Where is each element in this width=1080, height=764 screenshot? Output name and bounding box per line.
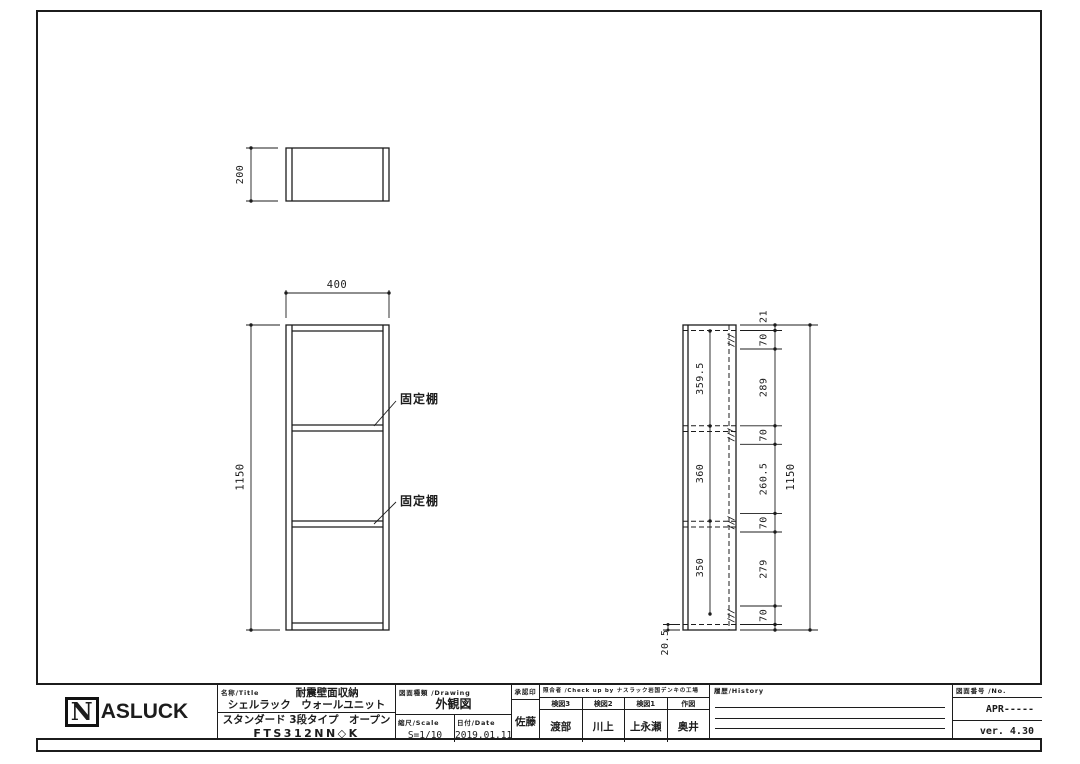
- side-chain-dim-70b: 70: [759, 429, 770, 442]
- side-overall-dim-text: 1150: [785, 463, 797, 490]
- history-rule: [715, 738, 945, 739]
- front-height-dim-text: 1150: [235, 463, 247, 490]
- drawing-type-value: 外観図: [396, 696, 511, 714]
- top-view-depth-dimension: [246, 146, 278, 202]
- side-chain-dim-21: 21: [759, 310, 770, 323]
- front-width-dimension: [284, 290, 390, 318]
- side-chain-dim-70d: 70: [759, 609, 770, 622]
- approval-name: 佐藤: [512, 700, 539, 742]
- approval-label: 承認印: [512, 685, 539, 700]
- scale-value: S=1/10: [396, 730, 454, 741]
- side-chain-dim-289: 289: [759, 378, 770, 398]
- side-inner-dim-2: 360: [695, 464, 706, 484]
- side-right-dimension-chain: [740, 323, 818, 631]
- drawing-area: 200 400 1150 固定棚 固定棚 359.5 360 350 21 70…: [0, 0, 1080, 764]
- product-series: シェルラック ウォールユニット: [218, 699, 395, 713]
- front-view-outline: [286, 325, 389, 630]
- check-cell: 照合者 /Check up by ナスラック岩国デンキの工場 検図3 渡部 検図…: [540, 685, 710, 738]
- check-name: 奥井: [668, 710, 710, 742]
- check-name: 渡部: [540, 710, 582, 742]
- history-cell: 履歴/History: [710, 685, 953, 738]
- title-field-label: 名称/Title: [218, 687, 259, 697]
- drawing-no-label: 図面番号 /No.: [953, 685, 1042, 698]
- side-overall-dimension: [808, 323, 811, 631]
- logo-text: ASLUCK: [101, 700, 189, 724]
- check-role: 検図2: [583, 698, 625, 710]
- history-rule: [715, 707, 945, 708]
- side-view-outline: [683, 325, 736, 630]
- side-bottom-dim-text: 20.5: [660, 629, 671, 655]
- scale-cell: 縮尺/Scale S=1/10: [396, 715, 455, 742]
- top-depth-dim-text: 200: [235, 165, 246, 185]
- date-label: 日付/Date: [455, 715, 511, 727]
- history-rule: [715, 728, 945, 729]
- side-view-hidden-lines: [683, 325, 736, 630]
- drawing-no-value: APR-----: [953, 698, 1042, 721]
- scale-label: 縮尺/Scale: [396, 715, 454, 727]
- shelf-label-1: 固定棚: [400, 391, 439, 406]
- side-inner-dim-1: 359.5: [695, 362, 706, 395]
- number-cell: 図面番号 /No. APR----- ver. 4.30: [953, 685, 1042, 738]
- shelf-leader-lines: [374, 401, 396, 524]
- model-number: FTS312NN◇K: [218, 727, 395, 742]
- approval-cell: 承認印 佐藤: [512, 685, 540, 738]
- history-rule: [715, 718, 945, 719]
- side-chain-dim-279: 279: [759, 559, 770, 579]
- top-view-outline: [286, 148, 389, 201]
- title-cell: 名称/Title 耐震壁面収納 シェルラック ウォールユニット スタンダード 3…: [218, 685, 396, 738]
- front-width-dim-text: 400: [327, 279, 347, 291]
- front-height-dimension: [246, 323, 280, 631]
- logo-initial: N: [65, 697, 99, 727]
- date-cell: 日付/Date 2019.01.11: [455, 715, 511, 742]
- shelf-label-2: 固定棚: [400, 493, 439, 508]
- title-block: N ASLUCK 名称/Title 耐震壁面収納 シェルラック ウォールユニット…: [36, 683, 1042, 740]
- check-column-3: 検図3 渡部: [540, 698, 583, 742]
- side-inner-dim-3: 350: [695, 558, 706, 578]
- check-role: 検図1: [625, 698, 667, 710]
- side-inner-dimension-chain: [708, 329, 711, 615]
- check-column-1: 検図1 上永瀬: [625, 698, 668, 742]
- product-title: 耐震壁面収納: [259, 685, 395, 700]
- check-column-2: 検図2 川上: [583, 698, 626, 742]
- side-chain-dim-70c: 70: [759, 516, 770, 529]
- check-name: 上永瀬: [625, 710, 667, 742]
- check-label: 照合者 /Check up by ナスラック岩国デンキの工場: [540, 685, 709, 698]
- logo-cell: N ASLUCK: [36, 685, 218, 738]
- front-view-shelves: [292, 425, 383, 527]
- check-name: 川上: [583, 710, 625, 742]
- drawing-type-cell: 図面種類 /Drawing 外観図 縮尺/Scale S=1/10 日付/Dat…: [396, 685, 512, 738]
- version-text: ver. 4.30: [953, 721, 1042, 742]
- drawing-sheet: 200 400 1150 固定棚 固定棚 359.5 360 350 21 70…: [0, 0, 1080, 764]
- nasluck-logo: N ASLUCK: [65, 697, 188, 727]
- product-type: スタンダード 3段タイプ オープン: [218, 713, 395, 727]
- drafting-column: 作図 奥井: [668, 698, 710, 742]
- history-label: 履歴/History: [710, 685, 952, 698]
- check-role: 検図3: [540, 698, 582, 710]
- check-role: 作図: [668, 698, 710, 710]
- date-value: 2019.01.11: [455, 730, 511, 741]
- side-chain-dim-260_5: 260.5: [759, 463, 770, 496]
- side-chain-dim-70a: 70: [759, 333, 770, 346]
